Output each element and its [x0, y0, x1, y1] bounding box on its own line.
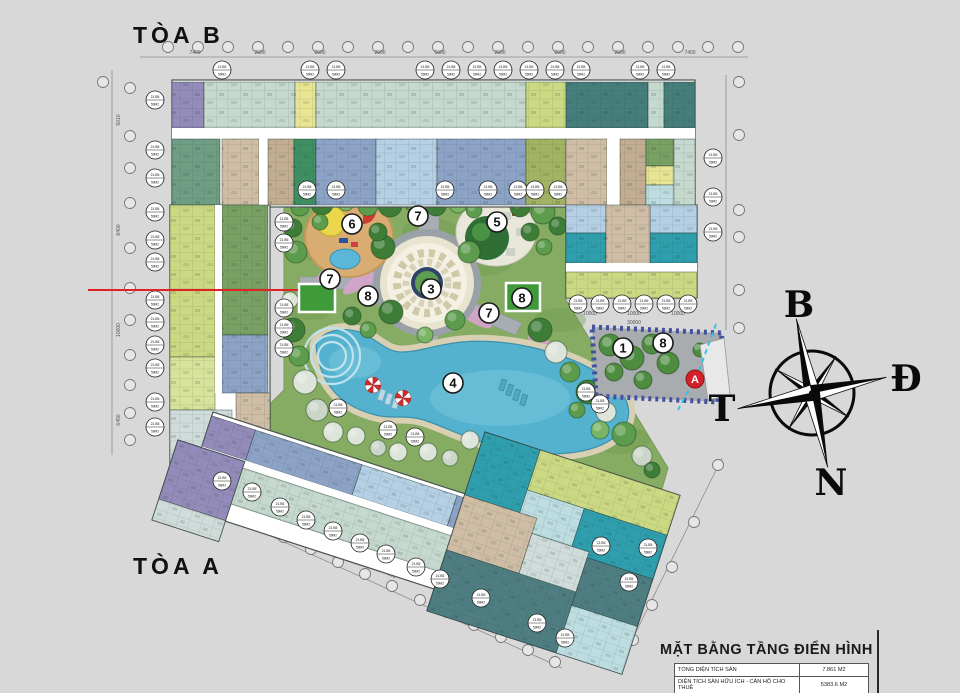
svg-text:21.B5: 21.B5 [561, 633, 570, 637]
unit-badge: 21.B559M2 [146, 169, 164, 187]
unit-badge: 21.B559M2 [620, 573, 638, 591]
unit-badge: 21.B559M2 [146, 418, 164, 436]
svg-text:59M2: 59M2 [151, 265, 159, 269]
grid-bubble [125, 83, 136, 94]
unit-badge: 21.B559M2 [546, 61, 564, 79]
svg-text:59M2: 59M2 [684, 307, 692, 311]
tower-a-label: TÒA A [133, 553, 223, 580]
svg-text:21.B5: 21.B5 [280, 217, 289, 221]
unit-badge: 21.B559M2 [275, 339, 293, 357]
svg-text:2000: 2000 [554, 50, 565, 56]
svg-text:59M2: 59M2 [484, 193, 492, 197]
area-table: TỔNG DIỆN TÍCH SÀN 7.861 M2 DIỆN TÍCH SÀ… [674, 663, 869, 693]
svg-text:59M2: 59M2 [554, 193, 562, 197]
unit-badge: 21.B559M2 [146, 91, 164, 109]
svg-text:21.B5: 21.B5 [709, 192, 718, 196]
grid-bubble [387, 581, 398, 592]
play-pond [330, 249, 360, 269]
grid-bubble [734, 130, 745, 141]
svg-text:21.B5: 21.B5 [596, 299, 605, 303]
area-row-label: DIỆN TÍCH SÀN HỮU ÍCH - CĂN HỘ CHO THUÊ [675, 677, 800, 693]
svg-text:2000: 2000 [494, 50, 505, 56]
svg-text:59M2: 59M2 [151, 181, 159, 185]
svg-text:21.B5: 21.B5 [411, 432, 420, 436]
svg-text:59M2: 59M2 [644, 551, 652, 555]
svg-text:21.B5: 21.B5 [280, 303, 289, 307]
svg-text:21.B5: 21.B5 [709, 227, 718, 231]
grid-bubble [713, 460, 724, 471]
grid-bubble [734, 285, 745, 296]
svg-text:21.B5: 21.B5 [640, 299, 649, 303]
unit-badge: 21.B559M2 [569, 295, 587, 313]
grid-bubble [403, 42, 414, 53]
unit-badge: 21.B559M2 [635, 295, 653, 313]
svg-text:59M2: 59M2 [640, 307, 648, 311]
svg-text:21.B5: 21.B5 [525, 65, 534, 69]
svg-text:7: 7 [326, 272, 333, 287]
unit-badge: 21.B559M2 [146, 203, 164, 221]
unit-badge: 21.B559M2 [468, 61, 486, 79]
svg-text:21.B5: 21.B5 [382, 549, 391, 553]
table-row: TỔNG DIỆN TÍCH SÀN 7.861 M2 [675, 664, 869, 677]
marker-7: 7 [320, 269, 340, 289]
svg-text:59M2: 59M2 [577, 73, 585, 77]
svg-text:21.B5: 21.B5 [151, 295, 160, 299]
svg-text:21.B5: 21.B5 [356, 538, 365, 542]
svg-text:59M2: 59M2 [533, 626, 541, 630]
svg-text:21.B5: 21.B5 [302, 515, 311, 519]
unit-badge: 21.B559M2 [639, 539, 657, 557]
frame-border-line [877, 630, 879, 693]
unit-badge: 21.B559M2 [271, 498, 289, 516]
unit-badge: 21.B559M2 [549, 181, 567, 199]
svg-text:59M2: 59M2 [412, 570, 420, 574]
svg-text:59M2: 59M2 [248, 495, 256, 499]
unit-badge: 21.B559M2 [146, 141, 164, 159]
svg-text:21.B5: 21.B5 [596, 399, 605, 403]
area-row-value: 5383.6 M2 [800, 677, 869, 693]
svg-text:21.B5: 21.B5 [151, 422, 160, 426]
marker-7: 7 [408, 206, 428, 226]
svg-text:59M2: 59M2 [384, 433, 392, 437]
unit-badge: 21.B559M2 [436, 181, 454, 199]
unit-badge: 21.B559M2 [526, 181, 544, 199]
grid-bubble [550, 657, 561, 668]
grid-bubble [125, 283, 136, 294]
unit-badge: 21.B559M2 [146, 291, 164, 309]
svg-text:21.B5: 21.B5 [625, 577, 634, 581]
unit-badge: 21.B559M2 [509, 181, 527, 199]
svg-text:8: 8 [364, 289, 371, 304]
grid-bubble [689, 517, 700, 528]
svg-text:59M2: 59M2 [514, 193, 522, 197]
svg-text:59M2: 59M2 [151, 405, 159, 409]
svg-text:59M2: 59M2 [709, 200, 717, 204]
unit-badge: 21.B559M2 [324, 522, 342, 540]
svg-text:3: 3 [427, 282, 434, 297]
svg-text:21.B5: 21.B5 [477, 593, 486, 597]
unit-badge: 21.B559M2 [275, 299, 293, 317]
svg-text:2000: 2000 [254, 50, 265, 56]
svg-text:4: 4 [449, 376, 457, 391]
grid-bubble [733, 42, 744, 53]
svg-text:21.B5: 21.B5 [551, 65, 560, 69]
area-row-value: 7.861 M2 [800, 664, 869, 677]
unit-badge: 21.B559M2 [379, 421, 397, 439]
unit-badge: 21.B559M2 [556, 629, 574, 647]
svg-text:5010: 5010 [116, 114, 122, 125]
svg-text:8: 8 [518, 291, 525, 306]
svg-text:21.B5: 21.B5 [412, 562, 421, 566]
unit-badge: 21.B559M2 [377, 545, 395, 563]
section-cut-line [88, 289, 298, 291]
svg-text:59M2: 59M2 [582, 395, 590, 399]
marker-7: 7 [479, 303, 499, 323]
unit-badge: 21.B559M2 [146, 336, 164, 354]
unit-badge: 21.B559M2 [704, 149, 722, 167]
unit-badge: 21.B559M2 [591, 295, 609, 313]
svg-text:59M2: 59M2 [151, 348, 159, 352]
svg-text:21.B5: 21.B5 [248, 487, 257, 491]
site-plan-drawing: 7400200020002000500020002000200074005010… [0, 0, 960, 693]
svg-text:21.B5: 21.B5 [597, 541, 606, 545]
compass-north-label: B [784, 284, 814, 326]
compass-south-label: N [815, 462, 848, 504]
svg-text:21.B5: 21.B5 [332, 65, 341, 69]
unit-badge: 21.B559M2 [572, 61, 590, 79]
grid-bubble [125, 380, 136, 391]
svg-text:59M2: 59M2 [303, 193, 311, 197]
grid-bubble [125, 315, 136, 326]
svg-text:59M2: 59M2 [597, 549, 605, 553]
svg-text:21.B5: 21.B5 [577, 65, 586, 69]
svg-text:7: 7 [485, 306, 492, 321]
svg-text:59M2: 59M2 [151, 430, 159, 434]
svg-text:21.B5: 21.B5 [473, 65, 482, 69]
unit-badge: 21.B559M2 [351, 534, 369, 552]
svg-text:21.B5: 21.B5 [303, 185, 312, 189]
marker-8: 8 [512, 288, 532, 308]
grid-bubble [673, 42, 684, 53]
svg-text:21.B5: 21.B5 [280, 323, 289, 327]
svg-text:21.B5: 21.B5 [151, 340, 160, 344]
svg-text:21.B5: 21.B5 [582, 387, 591, 391]
unit-badge: 21.B559M2 [406, 428, 424, 446]
svg-text:59M2: 59M2 [382, 557, 390, 561]
svg-text:59M2: 59M2 [525, 73, 533, 77]
grid-bubble [734, 77, 745, 88]
svg-text:21.B5: 21.B5 [332, 185, 341, 189]
svg-text:59M2: 59M2 [332, 193, 340, 197]
svg-text:59M2: 59M2 [334, 411, 342, 415]
tower-b-label: TÒA B [133, 22, 224, 49]
svg-text:59M2: 59M2 [151, 103, 159, 107]
grid-bubble [125, 131, 136, 142]
svg-text:7400: 7400 [684, 50, 695, 56]
svg-text:30000: 30000 [627, 320, 641, 326]
grid-bubble [583, 42, 594, 53]
svg-text:59M2: 59M2 [280, 246, 288, 250]
unit-badge: 21.B559M2 [301, 61, 319, 79]
svg-text:59M2: 59M2 [151, 243, 159, 247]
grid-bubble [643, 42, 654, 53]
svg-text:59M2: 59M2 [411, 440, 419, 444]
grid-bubble [125, 198, 136, 209]
grid-bubble [125, 435, 136, 446]
svg-text:21.B5: 21.B5 [384, 425, 393, 429]
unit-badge: 21.B559M2 [657, 61, 675, 79]
grid-bubble [415, 595, 426, 606]
unit-badge: 21.B559M2 [297, 511, 315, 529]
unit-badge: 21.B559M2 [213, 472, 231, 490]
unit-badge: 21.B559M2 [704, 223, 722, 241]
svg-text:59M2: 59M2 [151, 371, 159, 375]
grid-bubble [125, 163, 136, 174]
area-row-label: TỔNG DIỆN TÍCH SÀN [675, 664, 800, 677]
svg-text:59M2: 59M2 [709, 161, 717, 165]
svg-text:5: 5 [493, 215, 500, 230]
svg-text:21.B5: 21.B5 [151, 235, 160, 239]
unit-badge: 21.B559M2 [329, 399, 347, 417]
svg-text:21.B5: 21.B5 [151, 317, 160, 321]
unit-badge: 21.B559M2 [657, 295, 675, 313]
svg-text:21.B5: 21.B5 [218, 65, 227, 69]
unit-badge: 21.B559M2 [146, 231, 164, 249]
pool-umbrella-icon [395, 390, 411, 406]
svg-text:7: 7 [414, 209, 421, 224]
svg-text:10000: 10000 [116, 323, 122, 337]
svg-text:59M2: 59M2 [441, 193, 449, 197]
marker-a-entrance: A [686, 370, 704, 388]
svg-text:59M2: 59M2 [551, 73, 559, 77]
unit-badge: 21.B559M2 [577, 383, 595, 401]
svg-text:59M2: 59M2 [531, 193, 539, 197]
svg-text:6450: 6450 [116, 414, 122, 425]
svg-text:21.B5: 21.B5 [554, 185, 563, 189]
svg-text:21.B5: 21.B5 [644, 543, 653, 547]
svg-text:21.B5: 21.B5 [151, 207, 160, 211]
title-block: MẶT BẰNG TẦNG ĐIỂN HÌNH TỔNG DIỆN TÍCH S… [660, 642, 890, 693]
svg-text:59M2: 59M2 [218, 484, 226, 488]
unit-badge: 21.B559M2 [472, 589, 490, 607]
svg-text:21.B5: 21.B5 [533, 618, 542, 622]
unit-badge: 21.B559M2 [275, 213, 293, 231]
pool-umbrella-icon [365, 377, 381, 393]
grid-bubble [283, 42, 294, 53]
unit-badge: 21.B559M2 [528, 614, 546, 632]
svg-text:59M2: 59M2 [276, 510, 284, 514]
unit-badge: 21.B559M2 [479, 181, 497, 199]
marker-5: 5 [487, 212, 507, 232]
unit-badge: 21.B559M2 [591, 395, 609, 413]
svg-text:59M2: 59M2 [280, 351, 288, 355]
svg-text:21.B5: 21.B5 [280, 238, 289, 242]
grid-bubble [125, 350, 136, 361]
svg-text:59M2: 59M2 [280, 311, 288, 315]
svg-text:21.B5: 21.B5 [684, 299, 693, 303]
svg-text:59M2: 59M2 [447, 73, 455, 77]
unit-badge: 21.B559M2 [243, 483, 261, 501]
svg-text:21.B5: 21.B5 [334, 403, 343, 407]
svg-text:21.B5: 21.B5 [531, 185, 540, 189]
svg-text:21.B5: 21.B5 [441, 185, 450, 189]
svg-text:59M2: 59M2 [636, 73, 644, 77]
svg-text:59M2: 59M2 [218, 73, 226, 77]
unit-badge: 21.B559M2 [327, 61, 345, 79]
svg-text:21.B5: 21.B5 [151, 173, 160, 177]
unit-badge: 21.B559M2 [275, 234, 293, 252]
grid-bubble [734, 205, 745, 216]
svg-text:6: 6 [348, 217, 355, 232]
unit-badge: 21.B559M2 [679, 295, 697, 313]
unit-badge: 21.B559M2 [631, 61, 649, 79]
svg-text:21.B5: 21.B5 [662, 299, 671, 303]
marker-6: 6 [342, 214, 362, 234]
svg-text:59M2: 59M2 [662, 73, 670, 77]
site-plan-sheet: 7400200020002000500020002000200074005010… [0, 0, 960, 693]
unit-badge: 21.B559M2 [298, 181, 316, 199]
compass-east-label: Đ [890, 358, 921, 400]
svg-text:59M2: 59M2 [280, 331, 288, 335]
unit-badge: 21.B559M2 [442, 61, 460, 79]
svg-text:21.B5: 21.B5 [306, 65, 315, 69]
compass-west-label: T [709, 388, 736, 430]
svg-text:2000: 2000 [614, 50, 625, 56]
svg-text:59M2: 59M2 [306, 73, 314, 77]
grid-bubble [734, 232, 745, 243]
svg-text:21.B5: 21.B5 [447, 65, 456, 69]
svg-text:21.B5: 21.B5 [151, 363, 160, 367]
svg-text:59M2: 59M2 [436, 582, 444, 586]
drawing-title: MẶT BẰNG TẦNG ĐIỂN HÌNH [660, 642, 890, 658]
svg-text:21.B5: 21.B5 [280, 343, 289, 347]
grid-bubble [463, 42, 474, 53]
svg-text:59M2: 59M2 [473, 73, 481, 77]
svg-text:59M2: 59M2 [596, 307, 604, 311]
svg-text:21.B5: 21.B5 [618, 299, 627, 303]
unit-badge: 21.B559M2 [146, 253, 164, 271]
unit-badge: 21.B559M2 [704, 188, 722, 206]
svg-text:59M2: 59M2 [356, 546, 364, 550]
svg-text:59M2: 59M2 [332, 73, 340, 77]
svg-text:59M2: 59M2 [151, 325, 159, 329]
svg-text:59M2: 59M2 [596, 407, 604, 411]
unit-badge: 21.B559M2 [592, 537, 610, 555]
unit-badge: 21.B559M2 [146, 359, 164, 377]
svg-text:21.B5: 21.B5 [421, 65, 430, 69]
svg-text:5000: 5000 [434, 50, 445, 56]
compass-rose [722, 303, 902, 483]
svg-text:2000: 2000 [374, 50, 385, 56]
unit-badge: 21.B559M2 [327, 181, 345, 199]
svg-text:59M2: 59M2 [709, 235, 717, 239]
svg-text:21.B5: 21.B5 [151, 397, 160, 401]
svg-text:21.B5: 21.B5 [514, 185, 523, 189]
svg-text:59M2: 59M2 [574, 307, 582, 311]
svg-text:21.B5: 21.B5 [329, 526, 338, 530]
unit-badge: 21.B559M2 [431, 570, 449, 588]
svg-text:21.B5: 21.B5 [151, 145, 160, 149]
grid-bubble [223, 42, 234, 53]
svg-text:59M2: 59M2 [662, 307, 670, 311]
unit-badge: 21.B559M2 [275, 319, 293, 337]
marker-8: 8 [358, 286, 378, 306]
svg-text:59M2: 59M2 [477, 601, 485, 605]
tree [634, 371, 652, 389]
unit-badge: 21.B559M2 [613, 295, 631, 313]
svg-text:21.B5: 21.B5 [709, 153, 718, 157]
unit-badge: 21.B559M2 [520, 61, 538, 79]
grid-bubble [734, 323, 745, 334]
unit-badge: 21.B559M2 [213, 61, 231, 79]
svg-text:59M2: 59M2 [151, 215, 159, 219]
svg-text:21.B5: 21.B5 [151, 257, 160, 261]
grid-bubble [360, 569, 371, 580]
svg-text:59M2: 59M2 [618, 307, 626, 311]
svg-text:21.B5: 21.B5 [499, 65, 508, 69]
tree [605, 363, 623, 381]
svg-text:59M2: 59M2 [499, 73, 507, 77]
svg-text:59M2: 59M2 [151, 303, 159, 307]
svg-text:59M2: 59M2 [329, 534, 337, 538]
svg-text:59M2: 59M2 [625, 585, 633, 589]
grid-bubble [703, 42, 714, 53]
marker-1: 1 [613, 338, 633, 358]
grid-bubble [125, 408, 136, 419]
svg-text:21.B5: 21.B5 [574, 299, 583, 303]
svg-text:21.B5: 21.B5 [484, 185, 493, 189]
grid-bubble [647, 600, 658, 611]
unit-badge: 21.B559M2 [416, 61, 434, 79]
svg-text:21.B5: 21.B5 [151, 95, 160, 99]
svg-text:21.B5: 21.B5 [436, 574, 445, 578]
svg-text:59M2: 59M2 [561, 641, 569, 645]
svg-text:1: 1 [619, 341, 626, 356]
grid-bubble [343, 42, 354, 53]
svg-text:A: A [691, 374, 699, 386]
svg-text:59M2: 59M2 [421, 73, 429, 77]
marker-4: 4 [443, 373, 463, 393]
svg-text:2000: 2000 [314, 50, 325, 56]
svg-text:21.B5: 21.B5 [636, 65, 645, 69]
grid-bubble [98, 77, 109, 88]
svg-text:59M2: 59M2 [151, 153, 159, 157]
unit-badge: 21.B559M2 [407, 558, 425, 576]
grid-bubble [523, 645, 534, 656]
svg-text:59M2: 59M2 [280, 225, 288, 229]
svg-text:8400: 8400 [116, 224, 122, 235]
svg-text:21.B5: 21.B5 [662, 65, 671, 69]
grid-bubble [667, 562, 678, 573]
unit-badge: 21.B559M2 [146, 393, 164, 411]
svg-text:59M2: 59M2 [302, 523, 310, 527]
grid-bubble [523, 42, 534, 53]
marker-3: 3 [421, 279, 441, 299]
svg-text:21.B5: 21.B5 [218, 476, 227, 480]
table-row: DIỆN TÍCH SÀN HỮU ÍCH - CĂN HỘ CHO THUÊ … [675, 677, 869, 693]
unit-badge: 21.B559M2 [146, 313, 164, 331]
svg-text:8: 8 [659, 336, 666, 351]
grid-bubble [125, 243, 136, 254]
svg-text:7400: 7400 [189, 50, 200, 56]
svg-text:21.B5: 21.B5 [276, 502, 285, 506]
marker-8: 8 [653, 333, 673, 353]
unit-badge: 21.B559M2 [494, 61, 512, 79]
